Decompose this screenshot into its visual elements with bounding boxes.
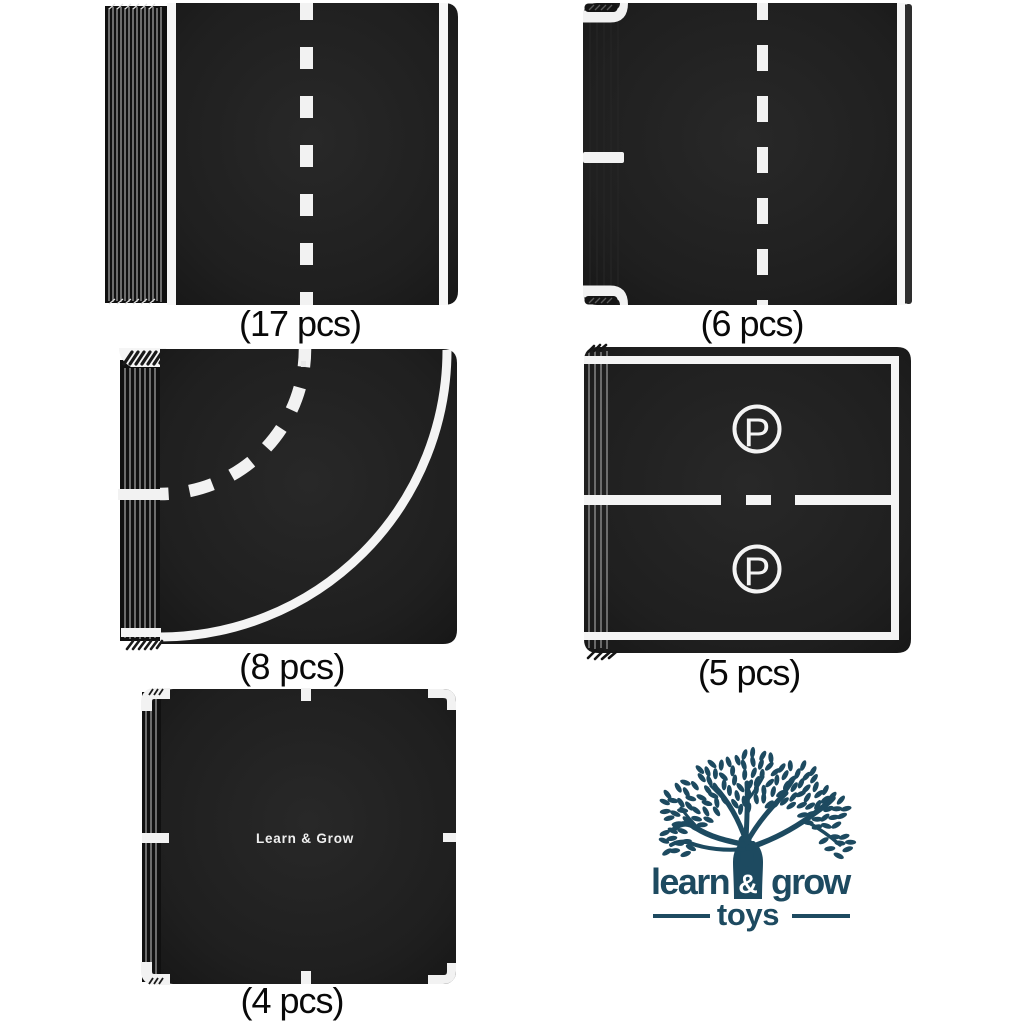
svg-text:(4 pcs): (4 pcs) — [240, 980, 343, 1021]
svg-text:P: P — [744, 550, 771, 594]
svg-text:&: & — [738, 869, 758, 899]
svg-text:learn: learn — [651, 861, 729, 902]
svg-text:(8 pcs): (8 pcs) — [239, 646, 345, 687]
svg-text:(6 pcs): (6 pcs) — [700, 303, 803, 344]
svg-text:toys: toys — [717, 897, 779, 932]
svg-text:(5 pcs): (5 pcs) — [698, 652, 800, 693]
svg-text:Learn & Grow: Learn & Grow — [256, 831, 354, 846]
svg-text:P: P — [744, 411, 771, 455]
svg-text:grow: grow — [771, 861, 852, 902]
svg-text:(17 pcs): (17 pcs) — [239, 303, 361, 344]
